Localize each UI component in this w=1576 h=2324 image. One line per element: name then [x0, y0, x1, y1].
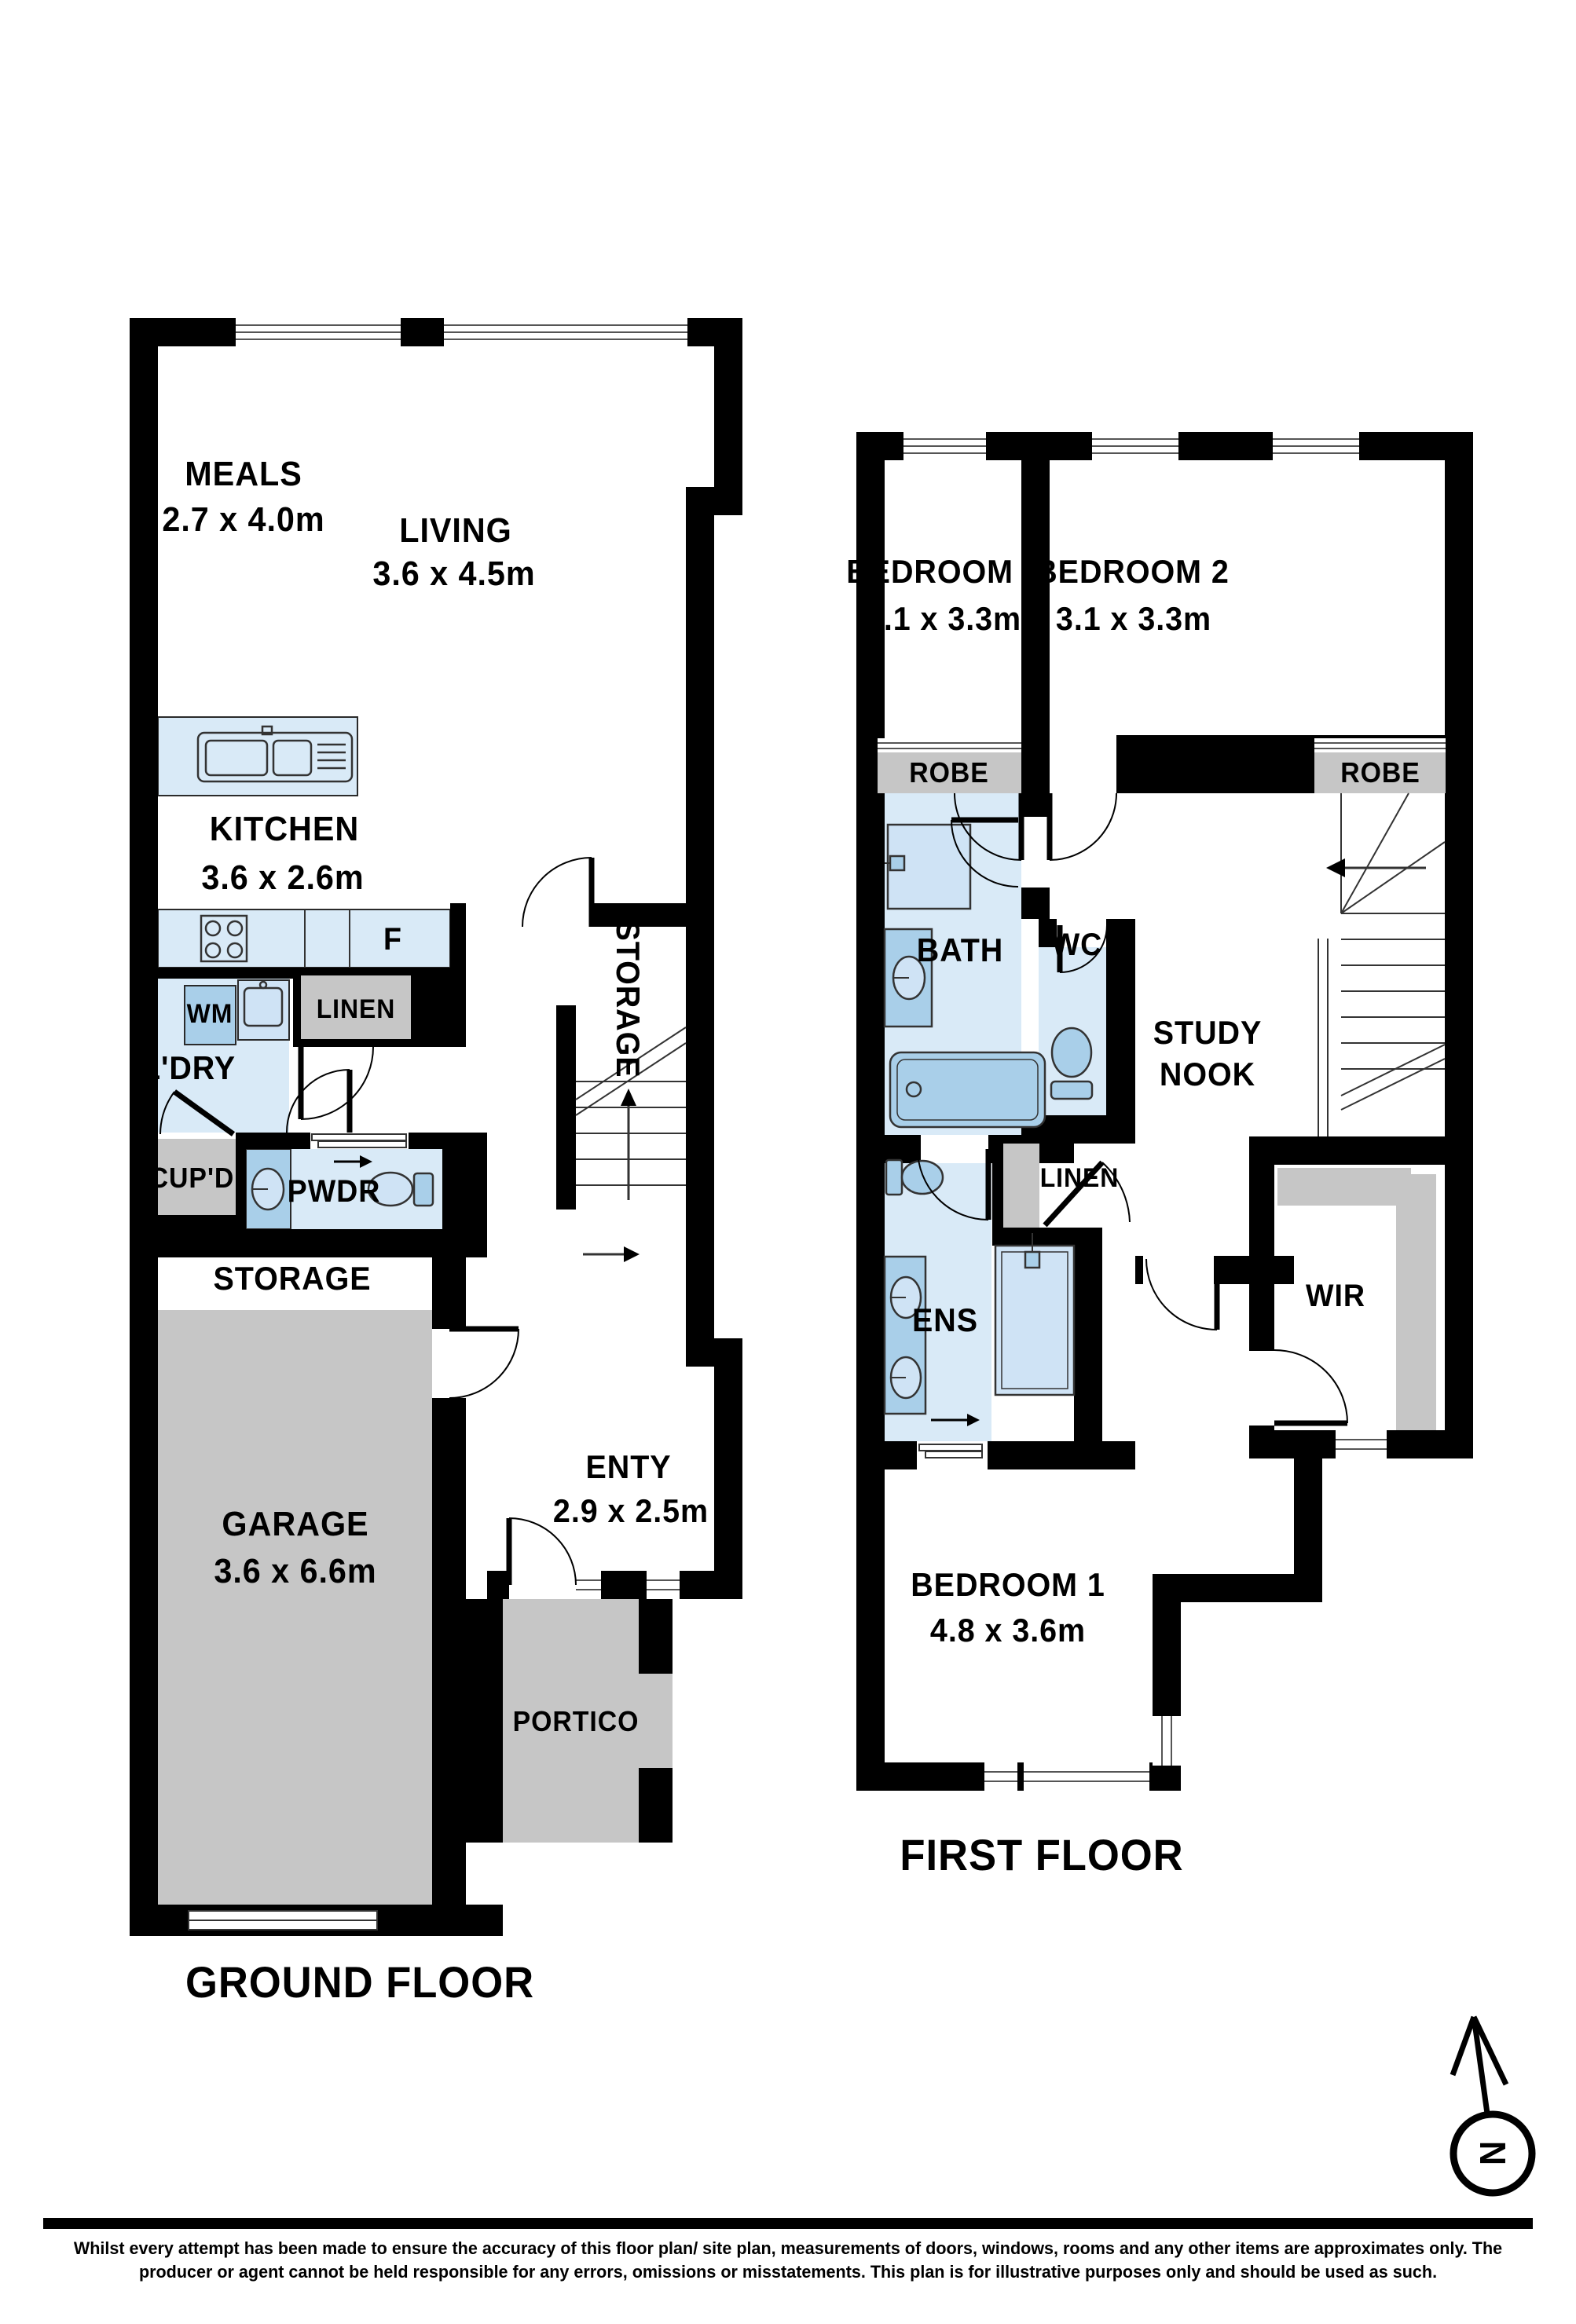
- bedroom2-dims: 3.1 x 3.3m: [1056, 602, 1211, 635]
- laundry-label: L'DRY: [141, 1052, 236, 1085]
- study-nook-line1: STUDY: [1153, 1016, 1263, 1049]
- storage-stairs-label: STORAGE: [611, 920, 644, 1078]
- wc-label: WC: [1052, 929, 1103, 961]
- cupboard-label: CUP'D: [149, 1164, 235, 1192]
- floor-plan-page: MEALS 2.7 x 4.0m LIVING 3.6 x 4.5m KITCH…: [0, 0, 1576, 2324]
- robe2-label: ROBE: [1340, 759, 1420, 787]
- bedroom1-label: BEDROOM 1: [911, 1568, 1105, 1601]
- disclaimer-line2: producer or agent cannot be held respons…: [139, 2262, 1437, 2282]
- living-label: LIVING: [399, 514, 512, 548]
- garage-door: [189, 1911, 377, 1930]
- disclaimer-line1: Whilst every attempt has been made to en…: [74, 2238, 1502, 2259]
- bedroom2-label: BEDROOM 2: [1035, 555, 1230, 588]
- powder-label: PWDR: [288, 1176, 381, 1207]
- kitchen-label: KITCHEN: [210, 812, 359, 847]
- wir-label: WIR: [1306, 1280, 1365, 1312]
- kitchen-dims: 3.6 x 2.6m: [201, 861, 364, 895]
- ground-floor-title: GROUND FLOOR: [185, 1960, 534, 2004]
- meals-label: MEALS: [185, 457, 302, 492]
- linen-first-label: LINEN: [1040, 1165, 1120, 1191]
- first-floor-title: FIRST FLOOR: [900, 1833, 1183, 1877]
- entry-dims: 2.9 x 2.5m: [553, 1495, 709, 1528]
- storage-hall-label: STORAGE: [213, 1262, 371, 1295]
- first-floor-stairs: [1318, 793, 1445, 1136]
- disclaimer-divider: [43, 2218, 1533, 2229]
- north-letter: N: [1475, 2141, 1511, 2166]
- fridge-label: F: [383, 924, 402, 955]
- robe3-label: ROBE: [909, 759, 989, 787]
- wc-toilet: [1051, 1028, 1092, 1099]
- ensuite-label: ENS: [912, 1304, 978, 1337]
- north-compass-graphic: [1453, 2017, 1532, 2193]
- bedroom1-dims: 4.8 x 3.6m: [930, 1614, 1086, 1647]
- meals-dims: 2.7 x 4.0m: [162, 503, 324, 537]
- bath-label: BATH: [917, 934, 1003, 967]
- bedroom3-dims: 3.1 x 3.3m: [866, 602, 1021, 635]
- living-dims: 3.6 x 4.5m: [372, 557, 535, 591]
- garage-label: GARAGE: [222, 1507, 368, 1542]
- study-nook-line2: NOOK: [1160, 1058, 1255, 1091]
- portico-label: PORTICO: [513, 1707, 640, 1736]
- garage-dims: 3.6 x 6.6m: [214, 1554, 376, 1589]
- linen-ground-label: LINEN: [317, 996, 396, 1023]
- washing-machine-label: WM: [187, 1001, 233, 1027]
- entry-label: ENTY: [585, 1451, 671, 1484]
- bedroom3-label: BEDROOM 3: [846, 555, 1041, 588]
